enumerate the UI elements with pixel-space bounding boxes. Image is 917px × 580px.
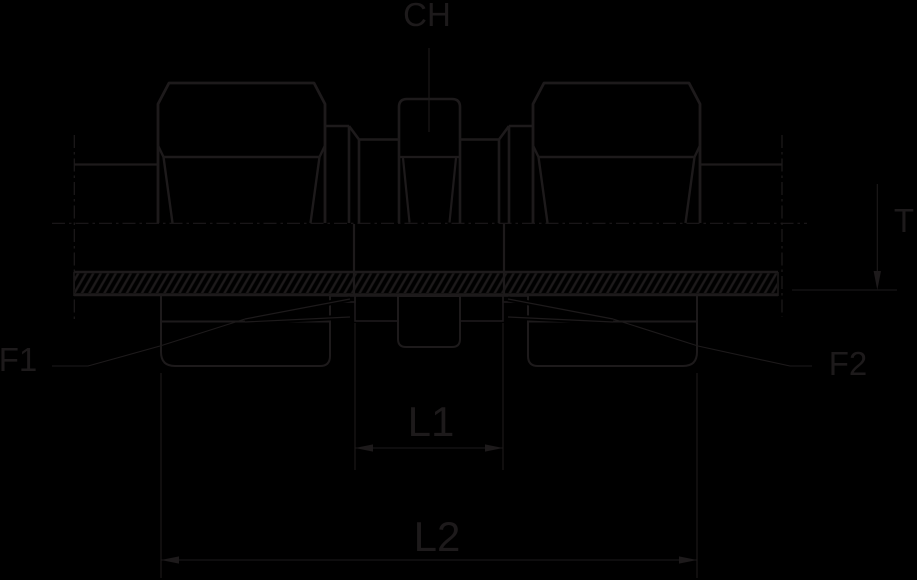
collar-left-lines: [326, 126, 400, 223]
hex-left-waist-chamfers: [158, 146, 325, 158]
hex-left-outline: [158, 83, 325, 223]
label-l1: L1: [408, 398, 455, 445]
leader-f2: [613, 319, 812, 366]
hex-left-facet-edges: [164, 157, 320, 223]
hex-nut-right: [533, 83, 700, 223]
f2-leader-line: [613, 319, 812, 366]
leader-f1: [52, 319, 245, 366]
hex-right-waist-chamfers: [533, 146, 700, 158]
right-cone-lines: [508, 299, 613, 322]
l1-arrowhead-left: [355, 444, 373, 451]
center-hex-facet-edges: [403, 158, 456, 223]
drawing-canvas: CH T F1 F2 L1 L2: [0, 0, 917, 580]
hex-nut-left: [158, 83, 325, 223]
l2-arrowhead-left: [161, 556, 179, 563]
right-strip-large: [460, 296, 503, 321]
f1-leader-line: [52, 319, 245, 366]
label-f1: F1: [0, 341, 37, 378]
hex-right-facet-edges: [539, 157, 695, 223]
hex-right-outline: [533, 83, 700, 223]
collar-left: [326, 126, 400, 223]
technical-drawing: CH T F1 F2 L1 L2: [0, 0, 917, 580]
center-stub-section: [398, 296, 460, 347]
l1-arrowhead-right: [485, 444, 503, 451]
label-ch: CH: [403, 0, 451, 33]
label-l2: L2: [414, 513, 461, 560]
section-left: [161, 295, 398, 366]
label-f2: F2: [829, 345, 868, 382]
label-t: T: [894, 202, 914, 239]
left-strip-large: [355, 296, 398, 321]
panel-hatch: [75, 274, 777, 294]
panel-plate: [74, 272, 778, 296]
section-right: [460, 295, 697, 366]
dimension-t: [792, 184, 897, 290]
collar-right-lines: [459, 126, 533, 223]
left-cone-lines: [245, 299, 350, 322]
t-arrowhead: [874, 271, 881, 290]
l2-arrowhead-right: [679, 556, 697, 563]
collar-right: [459, 126, 533, 223]
dimension-l1: [355, 323, 503, 470]
